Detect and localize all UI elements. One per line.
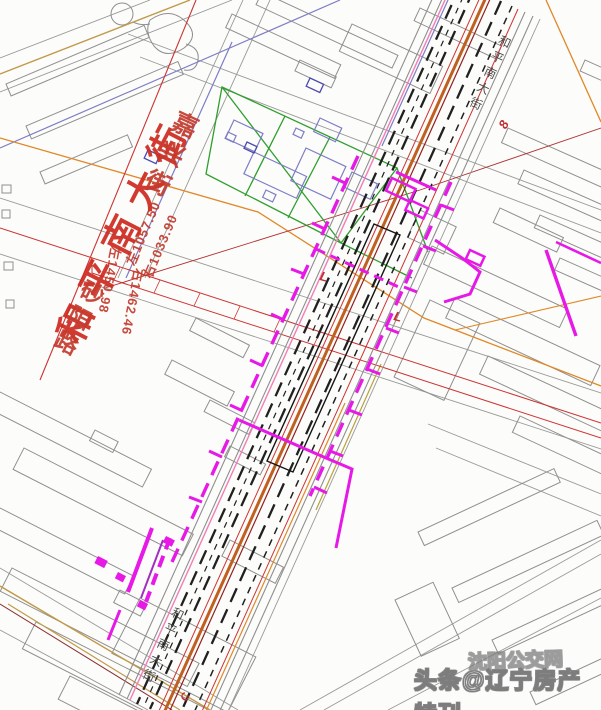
watermark-primary: 头条@辽宁房产特刊 xyxy=(414,661,601,710)
building-outlines xyxy=(0,0,601,710)
map-canvas xyxy=(0,0,601,710)
main-road xyxy=(119,0,540,710)
map-viewport: 和平南大街 嘉兴街 砂阳路 左1057.50 右1033.90 左1450.98… xyxy=(0,0,601,710)
street-grid xyxy=(0,0,601,710)
utility-lines xyxy=(0,0,601,710)
